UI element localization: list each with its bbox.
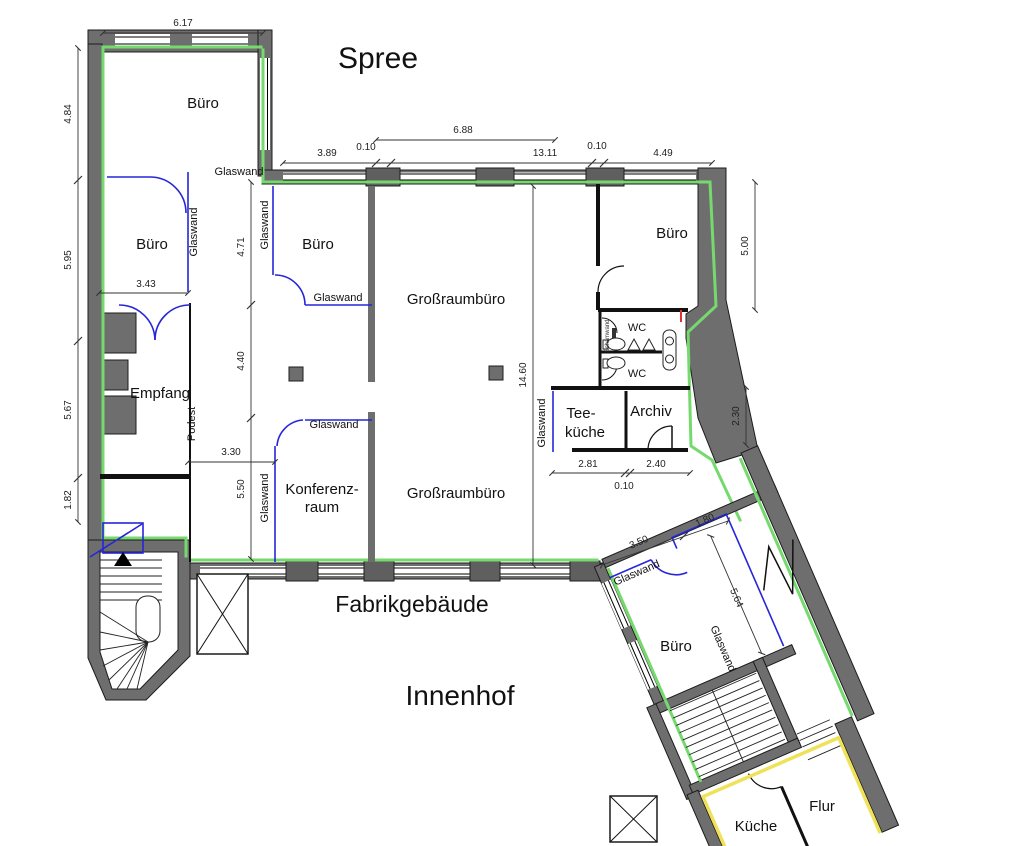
room-label-teekueche-2: küche [565, 424, 605, 441]
dim-north-2: 13.11 [533, 148, 558, 159]
label-glaswand-6: Glaswand [259, 474, 271, 523]
dim-west-4: 1.82 [63, 490, 74, 510]
room-label-buero-wing: Büro [660, 638, 692, 655]
floor-plan-canvas: 5.64 6.17 4.84 5.95 5.67 1.82 3.89 0.10 … [0, 0, 1024, 846]
room-label-wc-bottom: WC [628, 368, 646, 380]
label-glaswand-2: Glaswand [188, 208, 200, 257]
room-label-grossraumbuero-bottom: Großraumbüro [407, 485, 505, 502]
dim-konferenz-left: 3.30 [221, 447, 241, 458]
dim-top-width: 6.17 [173, 18, 193, 29]
room-label-konferenzraum-2: raum [305, 499, 339, 516]
dim-east-wall: 2.30 [731, 406, 742, 426]
dim-north-gap-1: 0.10 [356, 142, 376, 153]
elevator-shaft [197, 574, 248, 654]
label-glaswand-1: Glaswand [215, 166, 264, 178]
room-label-buero-e: Büro [656, 225, 688, 242]
wing-southeast: 5.64 [569, 446, 919, 846]
label-glaswand-3: Glaswand [259, 201, 271, 250]
room-label-buero-m: Büro [302, 236, 334, 253]
dim-teekueche-width: 2.81 [578, 459, 598, 470]
dim-west-2: 5.95 [63, 250, 74, 270]
sink-icon [628, 339, 640, 350]
room-label-teekueche-1: Tee- [566, 405, 595, 422]
room-label-flur: Flur [809, 798, 835, 815]
dim-north-inner: 6.88 [453, 125, 473, 136]
area-label-innenhof: Innenhof [406, 680, 515, 711]
column [289, 367, 303, 381]
dim-south-gap: 0.10 [614, 481, 634, 492]
dim-west-3: 5.67 [63, 400, 74, 420]
basin-icon [663, 330, 676, 370]
dim-north-1: 3.89 [317, 148, 337, 159]
room-label-buero-nw: Büro [187, 95, 219, 112]
room-label-buero-w: Büro [136, 236, 168, 253]
sink-icon [643, 339, 655, 350]
dim-archiv-width: 2.40 [646, 459, 666, 470]
dim-buero-w-width: 3.43 [136, 279, 156, 290]
room-label-kueche: Küche [735, 818, 778, 835]
label-podest: Podest [186, 407, 198, 441]
room-label-archiv: Archiv [630, 403, 672, 420]
room-label-grossraumbuero-top: Großraumbüro [407, 291, 505, 308]
floor-plan-drawing: 5.64 6.17 4.84 5.95 5.67 1.82 3.89 0.10 … [0, 0, 1024, 846]
dim-north-3: 4.49 [653, 148, 673, 159]
column [489, 366, 503, 380]
dim-west-1: 4.84 [63, 104, 74, 124]
dim-buero-e-depth: 5.00 [740, 236, 751, 256]
label-glaswand-8: Glaswand [612, 558, 662, 589]
area-label-spree: Spree [338, 42, 418, 75]
dim-col-3: 5.50 [236, 479, 247, 499]
dim-grossraum-depth: 14.60 [518, 362, 529, 387]
dim-col-2: 4.40 [236, 351, 247, 371]
label-glaswand-4: Glaswand [314, 292, 363, 304]
label-schamwand: Schamwand [605, 319, 611, 352]
label-glaswand-7: Glaswand [536, 399, 548, 448]
room-label-wc-top: WC [628, 322, 646, 334]
room-label-konferenzraum-1: Konferenz- [285, 481, 358, 498]
room-label-empfang: Empfang [130, 385, 190, 402]
label-glaswand-9: Glaswand [707, 624, 738, 674]
dim-north-gap-2: 0.10 [587, 141, 607, 152]
area-label-fabrikgebaeude: Fabrikgebäude [335, 591, 488, 617]
dim-col-1: 4.71 [236, 237, 247, 257]
label-glaswand-5: Glaswand [310, 419, 359, 431]
doors [598, 266, 672, 450]
shaft-southeast [610, 796, 657, 842]
dim-wing-depth: 5.64 [727, 587, 745, 610]
